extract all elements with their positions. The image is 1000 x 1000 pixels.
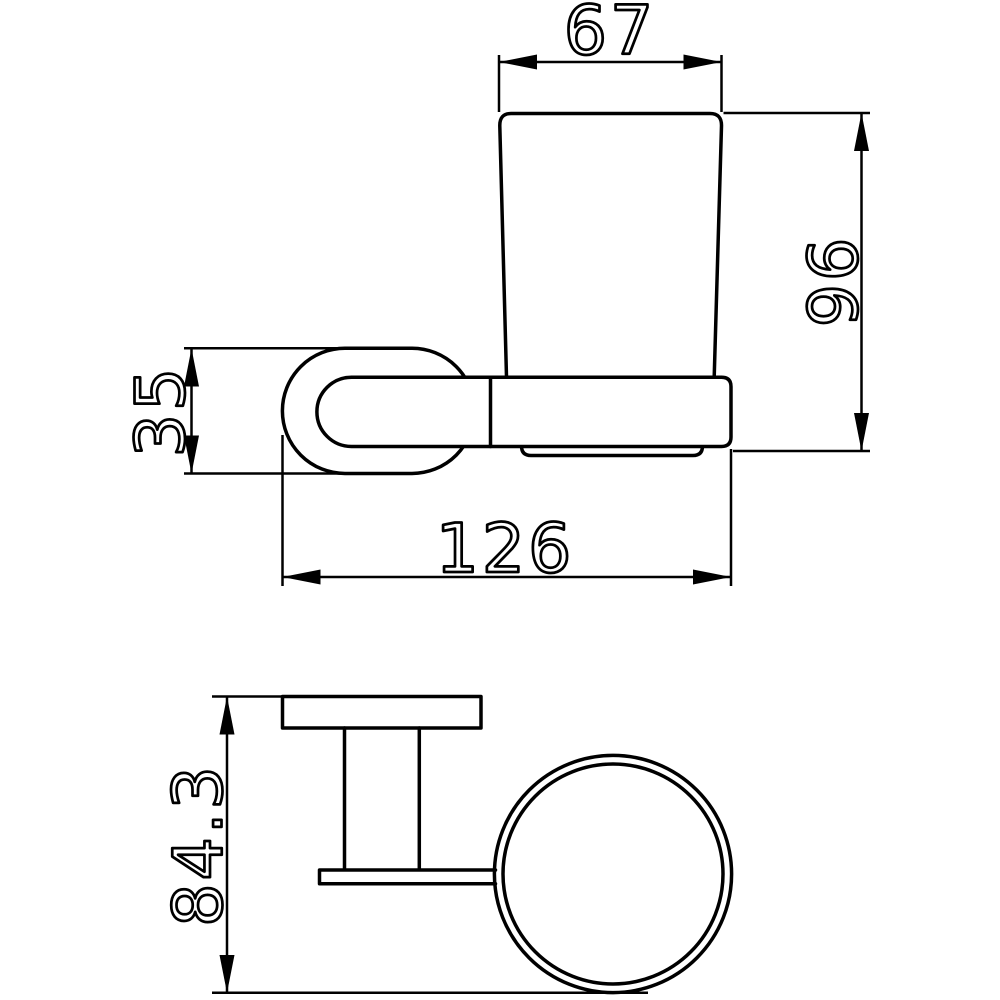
cup-outline	[500, 114, 722, 378]
dim-126-arrow-right	[693, 570, 731, 585]
dim-96-arrow-bottom	[854, 413, 869, 451]
technical-drawing: 67 96 35 126	[0, 0, 1000, 1000]
dim-84-3-arrow-bottom	[220, 955, 235, 993]
drawing-canvas: 67 96 35 126	[0, 0, 1000, 1000]
top-view	[283, 697, 732, 993]
dim-126-arrow-left	[283, 570, 321, 585]
holder-arm-outline	[317, 377, 731, 446]
ring-inner-circle	[503, 764, 723, 984]
dim-84-3-arrow-top	[220, 697, 235, 735]
dim-84-3: 84.3	[160, 697, 649, 993]
dim-96-arrow-top	[854, 113, 869, 151]
side-view	[282, 114, 731, 474]
dim-96-label: 96	[795, 235, 874, 328]
arm-bar-outline	[320, 870, 496, 884]
dim-84-3-label: 84.3	[160, 763, 239, 926]
dim-35-label: 35	[122, 365, 201, 458]
dim-67-arrow-left	[499, 55, 537, 70]
dim-67-arrow-right	[684, 55, 722, 70]
dim-67-label: 67	[564, 0, 657, 71]
ring-outer-circle	[494, 755, 731, 992]
dim-67: 67	[499, 0, 722, 112]
dim-126-label: 126	[436, 510, 575, 589]
wall-plate-outline	[283, 697, 482, 729]
dim-96: 96	[724, 113, 875, 451]
